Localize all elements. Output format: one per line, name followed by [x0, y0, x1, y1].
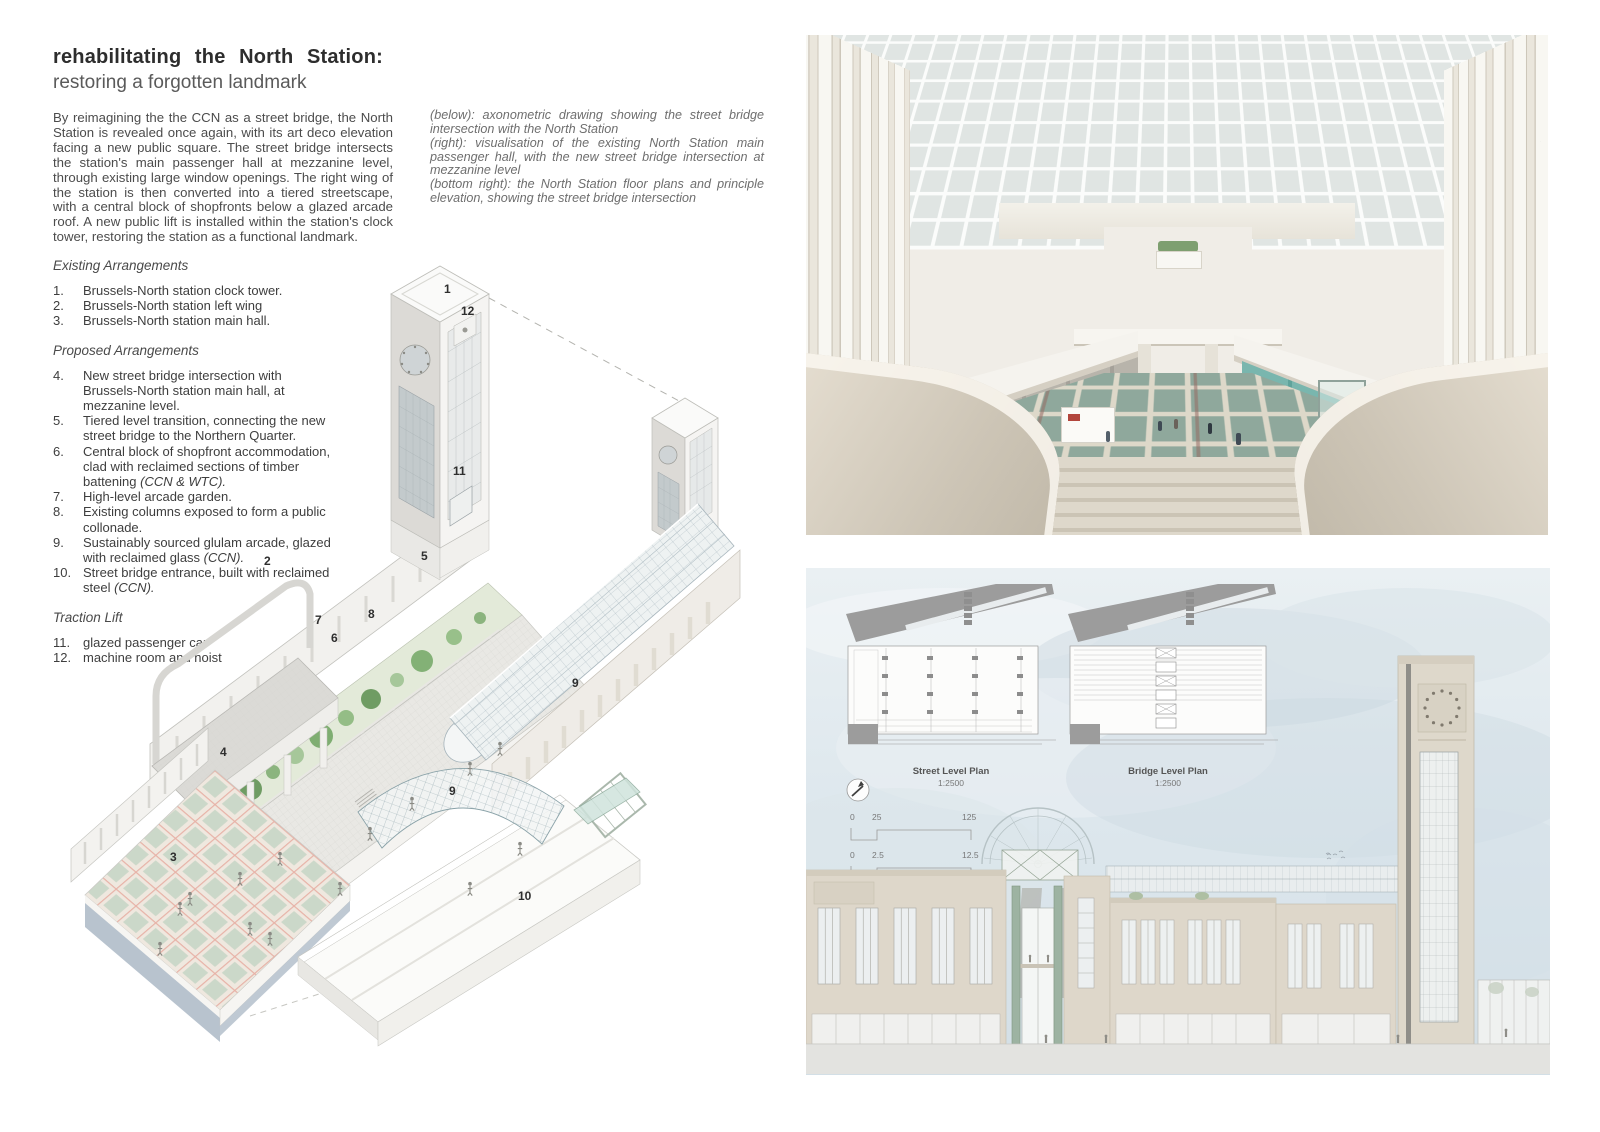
- axon-label-11: 11: [453, 464, 466, 478]
- elevation-tall-bay: [1064, 876, 1110, 1044]
- svg-text:25: 25: [872, 812, 882, 822]
- axon-label-6: 6: [331, 631, 338, 645]
- axon-label-12: 12: [461, 304, 474, 318]
- page-title: rehabilitating the North Station:: [53, 46, 383, 69]
- axon-label-10: 10: [518, 889, 531, 903]
- svg-text:12.5: 12.5: [962, 850, 979, 860]
- intro-paragraph: By reimagining the the CCN as a street b…: [53, 111, 393, 245]
- page-subtitle: restoring a forgotten landmark: [53, 72, 383, 94]
- elevation-left-wing: [806, 870, 1006, 1044]
- dashed-leader-line: [489, 298, 692, 408]
- foreground-stairs: [1018, 457, 1338, 535]
- axon-label-8: 8: [368, 607, 375, 621]
- person: [1174, 419, 1178, 429]
- axon-label-4: 4: [220, 745, 227, 759]
- north-arrow-icon: [847, 779, 869, 801]
- street-plan-scale: 1:2500: [938, 778, 964, 788]
- person: [1158, 421, 1162, 431]
- presentation-board: rehabilitating the North Station: restor…: [0, 0, 1600, 1132]
- bridge-plan-scale: 1:2500: [1155, 778, 1181, 788]
- svg-text:0: 0: [850, 812, 855, 822]
- axon-label-7: 7: [315, 613, 322, 627]
- axonometric-drawing: 1 12 11 2 5 8 7 6 4 3 9 9 10: [40, 250, 780, 1070]
- axon-label-2: 2: [264, 554, 271, 568]
- axon-label-9a: 9: [572, 676, 579, 690]
- axon-label-9b: 9: [449, 784, 456, 798]
- person: [1208, 423, 1212, 434]
- interior-visualisation: [806, 35, 1548, 535]
- svg-text:0: 0: [850, 850, 855, 860]
- plans-elevation-panel: Street Level Plan 1:2500: [806, 568, 1550, 1075]
- caption-right: (right): visualisation of the existing N…: [430, 137, 764, 179]
- elevation-right-block: [1110, 892, 1276, 1044]
- axon-label-1: 1: [444, 282, 451, 296]
- kiosk-sign: [1068, 414, 1080, 421]
- glass-fence: [1478, 980, 1550, 1044]
- panel2-svg: Street Level Plan 1:2500: [806, 568, 1550, 1075]
- svg-text:125: 125: [962, 812, 976, 822]
- person: [1106, 431, 1110, 442]
- bridge-plan-label: Bridge Level Plan: [1128, 766, 1208, 777]
- title-block: rehabilitating the North Station: restor…: [53, 46, 383, 94]
- svg-text:2.5: 2.5: [872, 850, 884, 860]
- figure-captions: (below): axonometric drawing showing the…: [430, 109, 764, 206]
- caption-below: (below): axonometric drawing showing the…: [430, 109, 764, 137]
- elevation-clock-tower: [1398, 656, 1474, 1044]
- caption-bottom-right: (bottom right): the North Station floor …: [430, 178, 764, 206]
- elevation-far-right-block: [1276, 904, 1396, 1044]
- axon-label-3: 3: [170, 850, 177, 864]
- person: [1236, 433, 1241, 445]
- street-plan-label: Street Level Plan: [913, 766, 990, 777]
- axon-label-5: 5: [421, 549, 428, 563]
- axon-svg: [40, 250, 780, 1070]
- planter-box: [1156, 251, 1202, 269]
